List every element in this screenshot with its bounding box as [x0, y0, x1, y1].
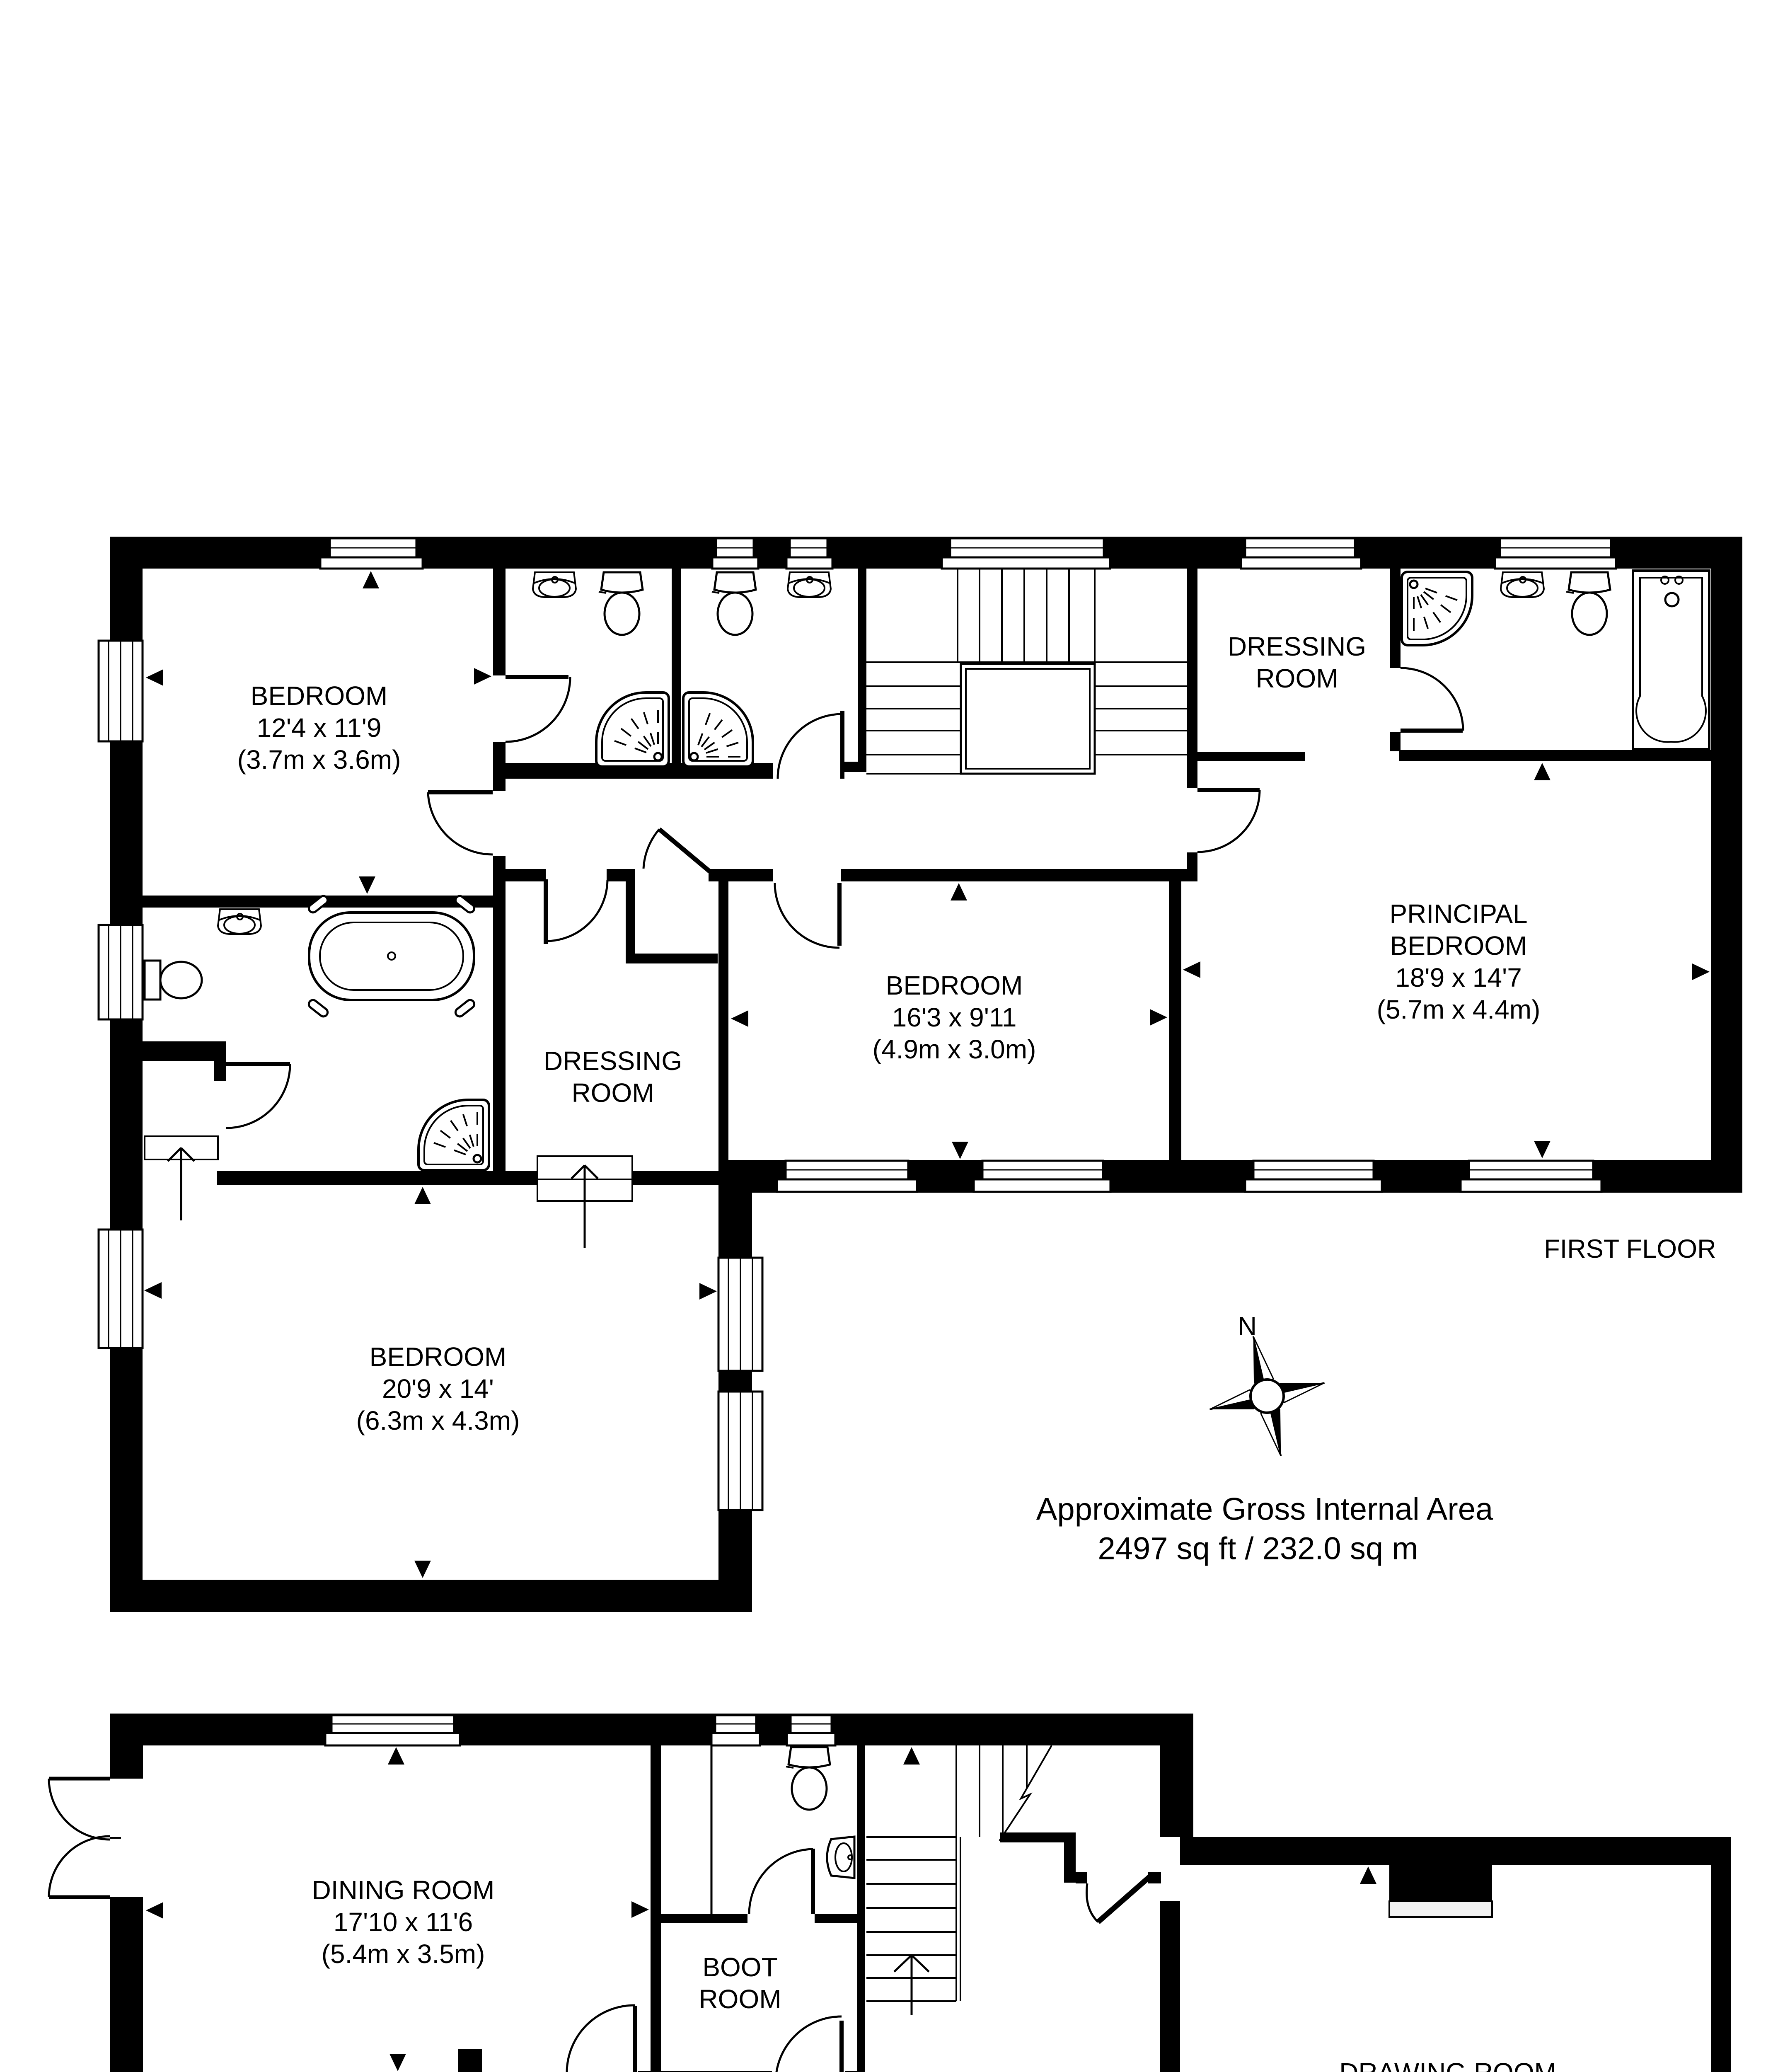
- svg-text:(4.9m x 3.0m): (4.9m x 3.0m): [873, 1034, 1036, 1064]
- svg-text:(3.7m x 3.6m): (3.7m x 3.6m): [237, 745, 401, 775]
- svg-text:BEDROOM: BEDROOM: [1390, 931, 1527, 961]
- svg-text:ROOM: ROOM: [571, 1078, 654, 1108]
- svg-text:FIRST FLOOR: FIRST FLOOR: [1544, 1234, 1716, 1264]
- svg-text:17'10 x 11'6: 17'10 x 11'6: [334, 1907, 473, 1937]
- svg-text:(5.7m x 4.4m): (5.7m x 4.4m): [1377, 995, 1541, 1024]
- svg-text:Approximate Gross Internal Are: Approximate Gross Internal Area: [1036, 1492, 1493, 1527]
- svg-text:N: N: [1238, 1311, 1257, 1341]
- svg-text:ROOM: ROOM: [699, 1984, 781, 2014]
- svg-text:(6.3m x 4.3m): (6.3m x 4.3m): [356, 1406, 520, 1435]
- svg-text:12'4 x 11'9: 12'4 x 11'9: [257, 713, 382, 743]
- svg-text:18'9 x 14'7: 18'9 x 14'7: [1395, 963, 1522, 992]
- svg-text:20'9 x 14': 20'9 x 14': [382, 1374, 494, 1404]
- svg-text:2497 sq ft / 232.0 sq m: 2497 sq ft / 232.0 sq m: [1098, 1531, 1418, 1566]
- svg-text:16'3 x 9'11: 16'3 x 9'11: [892, 1002, 1017, 1032]
- svg-text:DRESSING: DRESSING: [1228, 632, 1366, 661]
- svg-text:DRAWING ROOM: DRAWING ROOM: [1339, 2057, 1556, 2072]
- svg-text:BOOT: BOOT: [702, 1952, 777, 1982]
- svg-text:BEDROOM: BEDROOM: [370, 1342, 507, 1372]
- svg-text:DINING ROOM: DINING ROOM: [312, 1875, 495, 1905]
- svg-text:(5.4m x 3.5m): (5.4m x 3.5m): [322, 1939, 485, 1969]
- svg-text:BEDROOM: BEDROOM: [251, 681, 388, 711]
- svg-text:DRESSING: DRESSING: [544, 1046, 682, 1076]
- svg-text:PRINCIPAL: PRINCIPAL: [1389, 899, 1527, 929]
- svg-text:ROOM: ROOM: [1255, 663, 1338, 693]
- svg-text:BEDROOM: BEDROOM: [886, 971, 1023, 1000]
